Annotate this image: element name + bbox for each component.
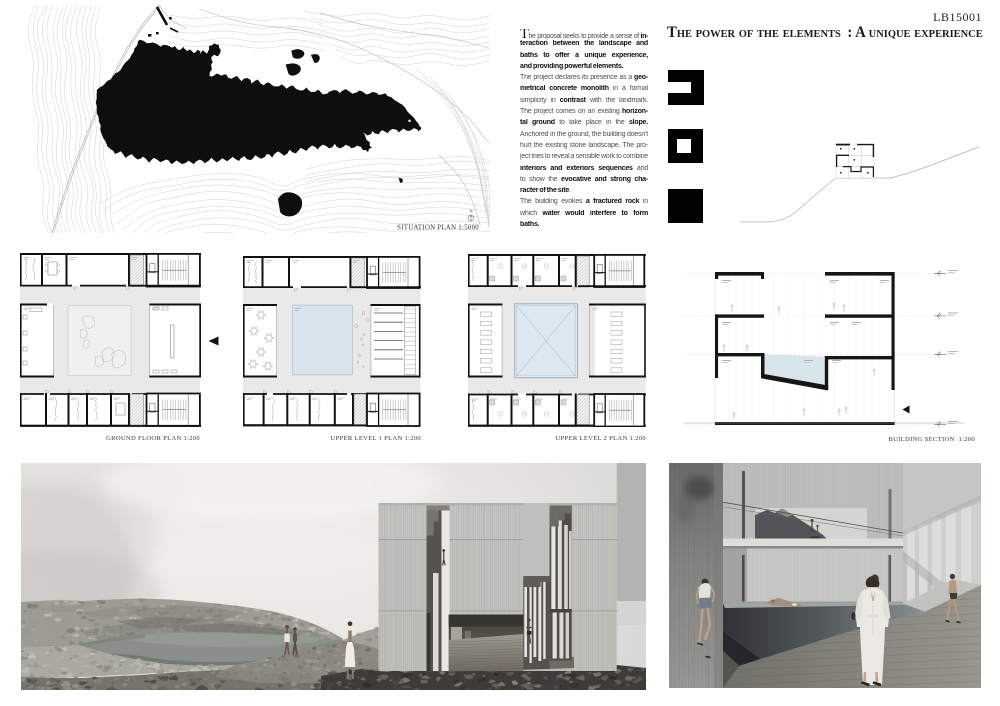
svg-text:SITUATION PLAN 1:5000: SITUATION PLAN 1:5000 xyxy=(397,225,479,232)
